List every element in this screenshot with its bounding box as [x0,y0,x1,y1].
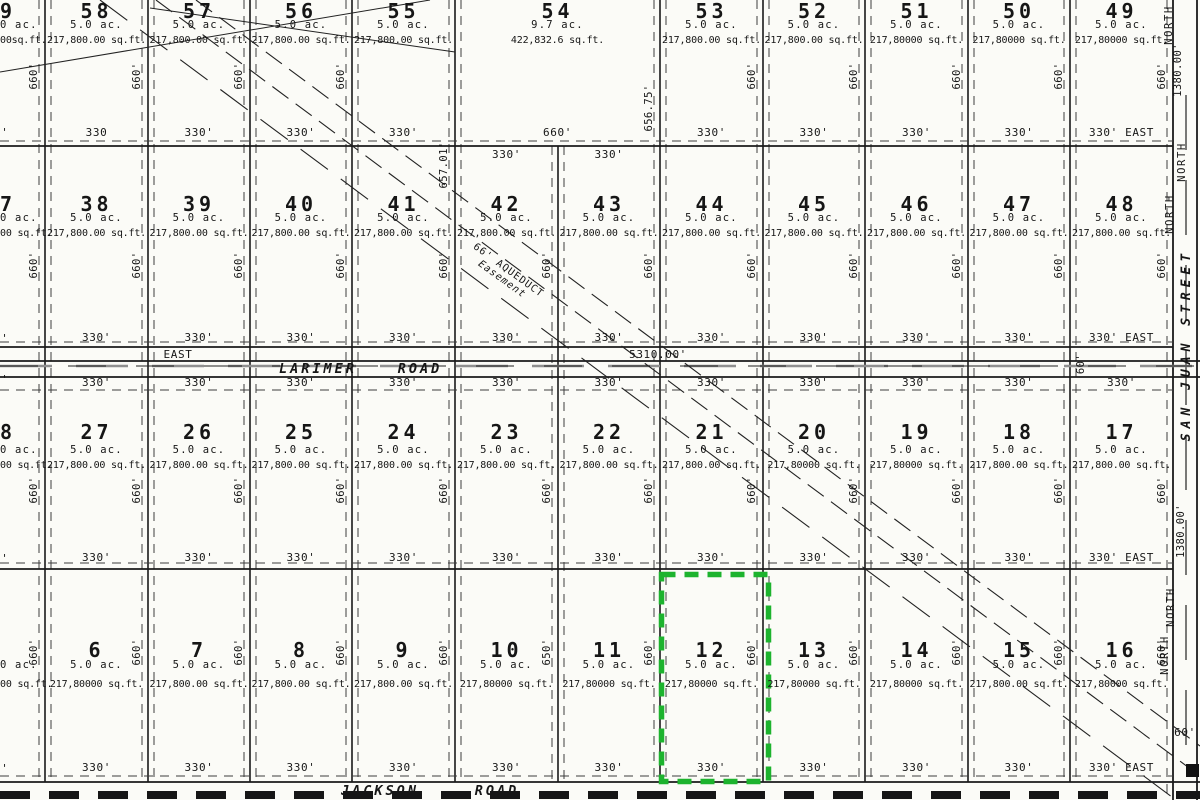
lot-43[interactable] [558,150,660,347]
lot-45[interactable] [763,150,865,347]
lot-49[interactable] [1070,0,1173,146]
lot-18[interactable] [968,380,1070,569]
lot-56[interactable] [250,0,352,146]
lot-40[interactable] [250,150,352,347]
intersection-monument [1186,764,1199,777]
partial-lot-row2[interactable] [0,150,45,347]
lot-14[interactable] [865,572,968,782]
lot-17[interactable] [1070,380,1173,569]
lot-16[interactable] [1070,572,1173,782]
lot-8[interactable] [250,572,352,782]
lot-6[interactable] [45,572,148,782]
lot-25[interactable] [250,380,352,569]
lot-9[interactable] [352,572,455,782]
lot-58[interactable] [45,0,148,146]
partial-lot-row3[interactable] [0,380,45,569]
lot-42[interactable] [455,150,558,347]
lot-11[interactable] [558,572,660,782]
lot-24[interactable] [352,380,455,569]
plat-map-canvas: 90 ac.00sq.ft.660'585.0 ac.217,800.00 sq… [0,0,1200,800]
lot-38[interactable] [45,150,148,347]
lot-22[interactable] [558,380,660,569]
lot-51[interactable] [865,0,968,146]
lot-13[interactable] [763,572,865,782]
lot-53[interactable] [660,0,763,146]
lot-46[interactable] [865,150,968,347]
lot-44[interactable] [660,150,763,347]
lot-15[interactable] [968,572,1070,782]
partial-lot-row1[interactable] [0,0,45,146]
lot-48[interactable] [1070,150,1173,347]
partial-lot-row4[interactable] [0,572,45,782]
lot-54[interactable] [455,0,660,146]
lot-21[interactable] [660,380,763,569]
lot-52[interactable] [763,0,865,146]
lot-12[interactable] [660,572,763,782]
section-boundary-bar [0,791,1200,799]
lot-39[interactable] [148,150,250,347]
lot-55[interactable] [352,0,455,146]
lot-7[interactable] [148,572,250,782]
lot-47[interactable] [968,150,1070,347]
lot-41[interactable] [352,150,455,347]
lot-26[interactable] [148,380,250,569]
lot-50[interactable] [968,0,1070,146]
lot-57[interactable] [148,0,250,146]
lot-20[interactable] [763,380,865,569]
lot-10[interactable] [455,572,558,782]
lot-23[interactable] [455,380,558,569]
lot-27[interactable] [45,380,148,569]
lot-19[interactable] [865,380,968,569]
